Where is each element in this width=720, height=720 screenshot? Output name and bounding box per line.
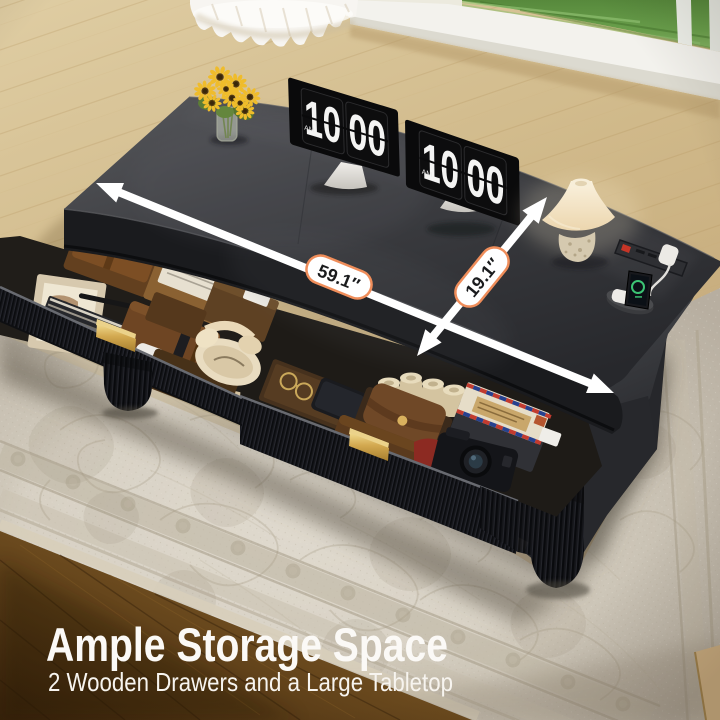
svg-text:Ample Storage Space: Ample Storage Space [46,618,448,671]
svg-text:2 Wooden Drawers and a Large T: 2 Wooden Drawers and a Large Tabletop [48,667,453,697]
